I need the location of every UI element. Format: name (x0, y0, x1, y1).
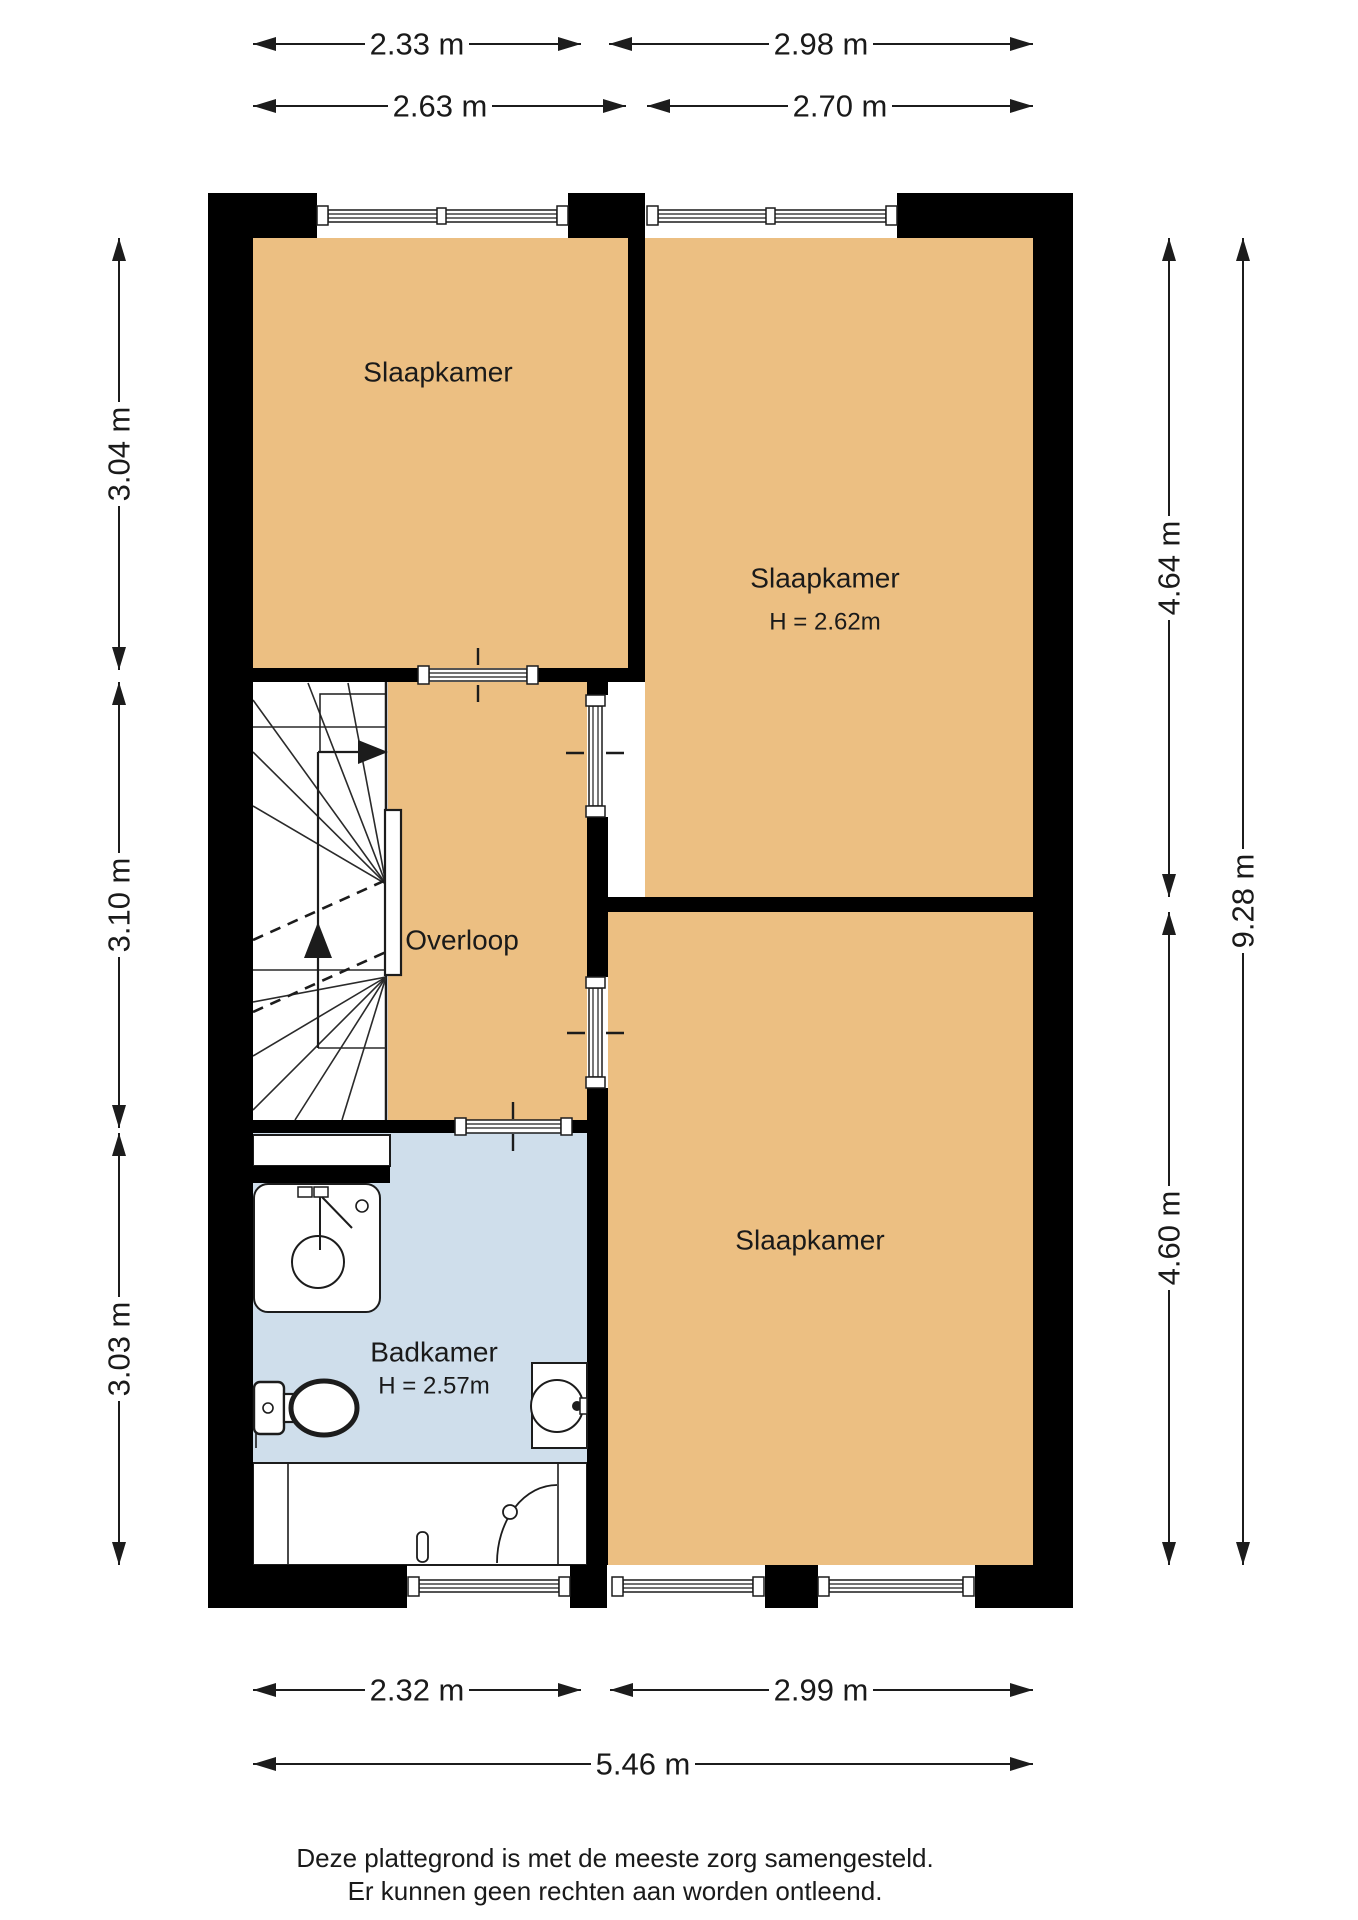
room-bedroom-top-left (253, 238, 628, 668)
ceiling-height-bathroom: H = 2.57m (378, 1373, 489, 1400)
wall-segment (587, 1133, 608, 1565)
dimension-right-top: 4.64 m (1152, 521, 1187, 616)
dimension-top-row1-right: 2.98 m (774, 27, 869, 62)
wall-segment (253, 668, 418, 682)
footer-disclaimer-line2: Er kunnen geen rechten aan worden ontlee… (348, 1876, 883, 1906)
ceiling-height-bedroom-top-right: H = 2.62m (769, 609, 880, 636)
shower-cabin (253, 1463, 587, 1565)
window (612, 1577, 764, 1596)
room-label-bedroom-top-left: Slaapkamer (363, 357, 512, 388)
wall-segment (608, 897, 1033, 912)
door-handle-icon (417, 1532, 428, 1562)
wall-segment (572, 1120, 587, 1133)
wall-segment (628, 238, 645, 670)
wall-segment (975, 1565, 1073, 1608)
wall-segment (253, 1166, 390, 1183)
shower-tray-icon (254, 1184, 380, 1312)
wall-segment (1033, 193, 1073, 1608)
dimension-left-top: 3.04 m (102, 407, 137, 502)
window (647, 206, 897, 225)
dimension-top-row2-right: 2.70 m (793, 89, 888, 124)
wall-segment (765, 1565, 818, 1608)
wall-segment (587, 817, 608, 977)
room-label-landing: Overloop (405, 925, 519, 956)
window (818, 1577, 974, 1596)
window (317, 206, 568, 225)
door-knob-icon (503, 1505, 517, 1519)
dimension-top-row1-left: 2.33 m (370, 27, 465, 62)
wall-segment (568, 193, 645, 238)
staircase (253, 682, 401, 1120)
floorplan-page: Slaapkamer Slaapkamer H = 2.62m Slaapkam… (0, 0, 1358, 1920)
room-landing (388, 682, 587, 1120)
room-label-bathroom: Badkamer (370, 1337, 498, 1368)
room-label-bedroom-bottom-right: Slaapkamer (735, 1225, 884, 1256)
dimension-left-bottom: 3.03 m (102, 1302, 137, 1397)
wall-segment (208, 193, 253, 1608)
wall-segment (570, 1565, 607, 1608)
wall-segment (587, 1088, 608, 1133)
wall-segment (208, 1565, 407, 1608)
wall-segment (253, 1120, 455, 1133)
dimension-bottom-total: 5.46 m (596, 1747, 691, 1782)
dimension-right-bottom: 4.60 m (1152, 1191, 1187, 1286)
dimension-bottom-right: 2.99 m (774, 1673, 869, 1708)
wall-segment (587, 670, 608, 695)
stair-banister (385, 810, 401, 975)
room-label-bedroom-top-right: Slaapkamer (750, 563, 899, 594)
dimension-left-middle: 3.10 m (102, 858, 137, 953)
understairs-niche (253, 1135, 390, 1166)
dimension-bottom-left: 2.32 m (370, 1673, 465, 1708)
floorplan-drawing: Slaapkamer Slaapkamer H = 2.62m Slaapkam… (0, 0, 1358, 1920)
footer-disclaimer-line1: Deze plattegrond is met de meeste zorg s… (296, 1843, 933, 1873)
dimension-top-row2-left: 2.63 m (393, 89, 488, 124)
window (408, 1577, 570, 1596)
washbasin-icon (531, 1363, 587, 1448)
dimension-right-total: 9.28 m (1226, 854, 1261, 949)
